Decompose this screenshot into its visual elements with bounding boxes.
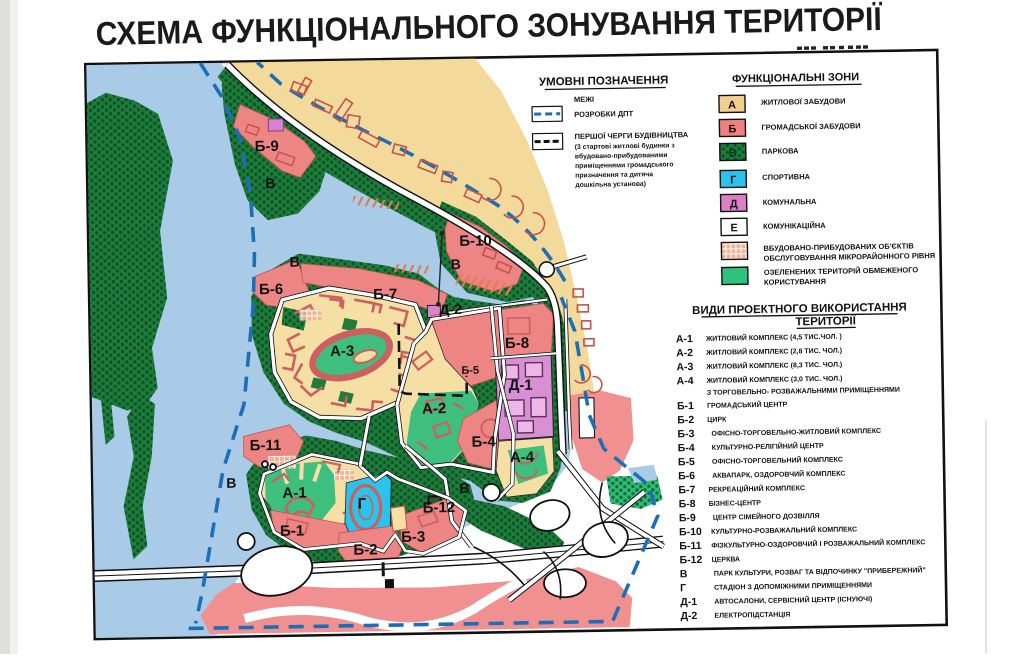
svg-text:А-3: А-3 [676,361,693,373]
svg-text:ГРОМАДСЬКОЇ ЗАБУДОВИ: ГРОМАДСЬКОЇ ЗАБУДОВИ [761,121,860,132]
svg-text:А-1: А-1 [676,333,693,345]
svg-text:БІЗНЕС-ЦЕНТР: БІЗНЕС-ЦЕНТР [709,500,762,508]
svg-text:Б-5: Б-5 [461,365,479,377]
svg-text:Б-4: Б-4 [678,442,695,454]
svg-text:Б-11: Б-11 [249,437,281,455]
svg-text:Б-10: Б-10 [459,232,492,250]
svg-text:В: В [729,147,737,159]
svg-text:А-3: А-3 [330,343,354,360]
svg-text:Б-1: Б-1 [677,400,694,412]
svg-text:Б-12: Б-12 [423,499,456,517]
svg-text:Б-4: Б-4 [471,433,496,450]
svg-text:дошкільна установа): дошкільна установа) [575,180,646,189]
svg-text:ФУНКЦІОНАЛЬНІ ЗОНИ: ФУНКЦІОНАЛЬНІ ЗОНИ [732,71,859,85]
svg-text:КОРИСТУВАННЯ: КОРИСТУВАННЯ [764,277,826,287]
svg-text:ЦИРК: ЦИРК [707,417,727,424]
svg-text:приміщеннями громадського: приміщеннями громадського [575,160,674,170]
svg-text:Б-9: Б-9 [679,512,696,524]
svg-text:В: В [459,480,469,496]
svg-text:Б-12: Б-12 [679,554,702,566]
svg-text:Д-2: Д-2 [439,301,462,317]
svg-text:В: В [289,254,299,270]
svg-text:Д-1: Д-1 [680,596,697,608]
svg-text:Д-1: Д-1 [509,377,533,394]
svg-text:В: В [680,568,688,580]
svg-text:А-4: А-4 [677,375,694,387]
svg-text:А: А [728,99,736,111]
svg-text:СПОРТИВНА: СПОРТИВНА [762,172,810,182]
svg-text:А-2: А-2 [676,347,693,359]
svg-text:Б: Б [728,123,736,135]
svg-text:В: В [451,256,461,272]
svg-text:КОМУНАЛЬНА: КОМУНАЛЬНА [763,197,817,207]
svg-text:Г: Г [680,582,686,594]
svg-text:Б-7: Б-7 [678,484,695,496]
svg-text:Д: Д [730,198,738,210]
svg-text:Г: Г [357,495,366,512]
svg-text:Б-1: Б-1 [280,523,304,540]
svg-text:Б-8: Б-8 [679,498,696,510]
svg-text:Б-8: Б-8 [505,335,529,352]
svg-text:МЕЖІ: МЕЖІ [574,95,594,104]
svg-text:Б-6: Б-6 [259,281,283,298]
svg-text:Б-7: Б-7 [373,286,397,303]
svg-text:Б-5: Б-5 [678,456,695,468]
svg-text:А-1: А-1 [282,484,306,501]
svg-text:Б-2: Б-2 [677,414,694,426]
svg-text:Б-2: Б-2 [353,541,377,558]
svg-text:Б-6: Б-6 [678,470,695,482]
svg-text:ЦЕРКВА: ЦЕРКВА [712,556,741,563]
svg-text:УМОВНІ ПОЗНАЧЕННЯ: УМОВНІ ПОЗНАЧЕННЯ [539,74,669,88]
svg-text:Е: Е [730,222,738,234]
svg-text:ПЕРШОЇ ЧЕРГИ БУДІВНИЦТВА: ПЕРШОЇ ЧЕРГИ БУДІВНИЦТВА [574,130,688,141]
svg-text:ЖИТЛОВОЇ ЗАБУДОВИ: ЖИТЛОВОЇ ЗАБУДОВИ [760,97,846,107]
svg-text:В: В [265,175,275,191]
svg-text:призначення та дитяча: призначення та дитяча [575,171,653,179]
svg-text:Б-3: Б-3 [677,428,694,440]
svg-text:ЕЛЕКТРОПІДСТАНЦІЯ: ЕЛЕКТРОПІДСТАНЦІЯ [714,611,790,619]
svg-text:вбудовано-прибудованими: вбудовано-прибудованими [575,151,668,161]
svg-text:А-4: А-4 [510,449,535,466]
svg-text:ПАРКОВА: ПАРКОВА [762,146,799,156]
svg-text:А-2: А-2 [422,400,446,417]
svg-text:Б-11: Б-11 [679,540,701,552]
svg-text:В: В [226,475,236,491]
svg-text:ТЕРИТОРІЇ: ТЕРИТОРІЇ [795,314,856,328]
svg-text:Б-10: Б-10 [679,526,702,538]
svg-text:Г: Г [730,174,737,186]
svg-text:РОЗРОБКИ ДПТ: РОЗРОБКИ ДПТ [574,109,633,119]
svg-text:Б-3: Б-3 [401,529,425,546]
svg-text:Д-2: Д-2 [680,610,697,622]
svg-text:(3 стартові житлові будинки з: (3 стартові житлові будинки з [575,141,676,151]
svg-text:Б-9: Б-9 [255,138,279,155]
svg-text:КОМУНІКАЦІЙНА: КОМУНІКАЦІЙНА [763,221,826,231]
